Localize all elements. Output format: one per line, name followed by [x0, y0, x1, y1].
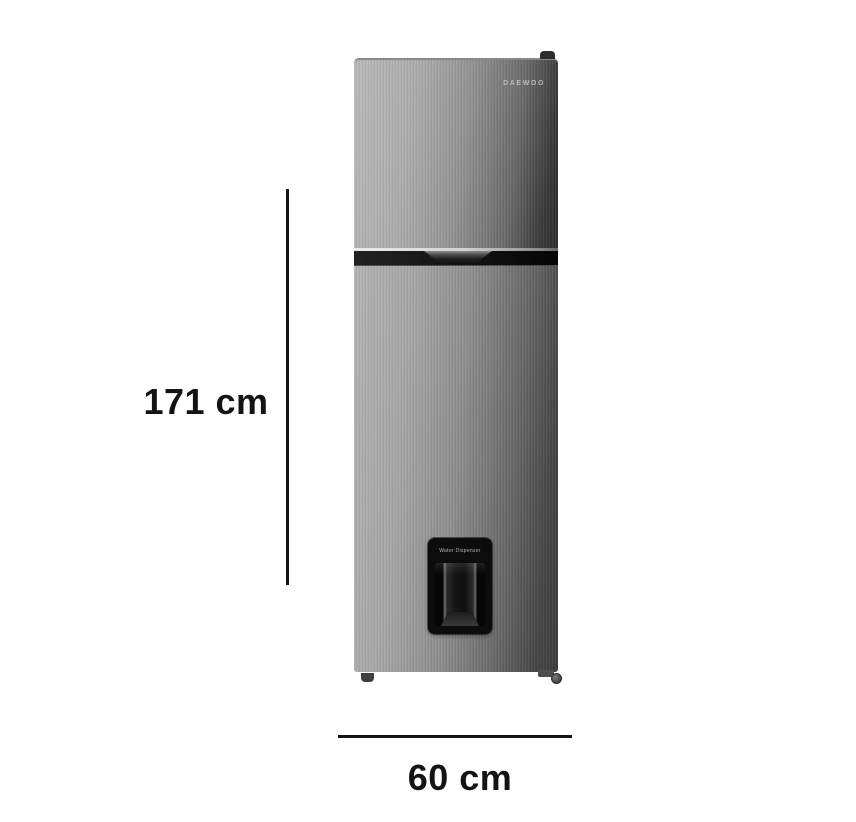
fridge-door: Water Dispenser — [354, 265, 558, 672]
recessed-handle — [424, 251, 492, 262]
left-foot — [361, 673, 374, 682]
freezer-door: DAEWOO — [354, 58, 558, 250]
dispenser-recess — [435, 563, 485, 626]
product-dimension-diagram: DAEWOO Water Dispenser 171 cm 60 cm — [0, 0, 856, 822]
height-dimension-label: 171 cm — [118, 381, 294, 423]
leveling-foot-wheel — [551, 673, 562, 684]
handle-band — [354, 251, 558, 265]
width-dimension-line — [338, 735, 572, 738]
door-hinge — [540, 51, 555, 59]
dispenser-drip-tray — [441, 612, 479, 626]
brand-logo: DAEWOO — [503, 80, 545, 87]
water-dispenser: Water Dispenser — [428, 538, 492, 634]
right-leveling-foot — [538, 668, 562, 684]
water-dispenser-label: Water Dispenser — [428, 548, 492, 554]
width-dimension-label: 60 cm — [372, 757, 548, 799]
refrigerator: DAEWOO Water Dispenser — [354, 56, 558, 688]
